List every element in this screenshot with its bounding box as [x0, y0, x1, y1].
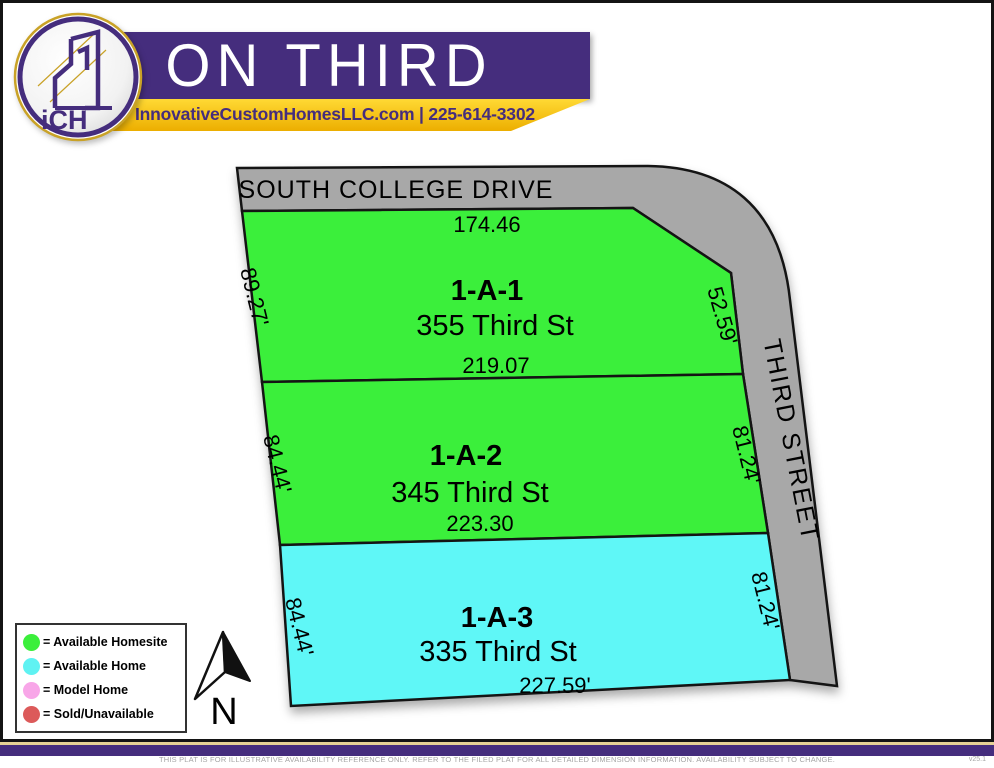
lot2-address: 345 Third St — [391, 477, 548, 509]
north-arrow-icon — [195, 632, 250, 699]
legend-item-sold: = Sold/Unavailable — [23, 702, 185, 726]
lot1-dim-bottom: 219.07 — [462, 353, 529, 378]
model-home-dot — [23, 682, 40, 699]
available-homesite-dot — [23, 634, 40, 651]
legend-label: = Available Home — [43, 659, 146, 673]
lot3-id: 1-A-3 — [461, 602, 534, 634]
lot-1-A-2 — [262, 374, 768, 545]
lot3-address: 335 Third St — [419, 636, 576, 668]
lot3-dim-bottom: 227.59' — [519, 673, 591, 698]
legend-box: = Available Homesite = Available Home = … — [15, 623, 187, 733]
legend-label: = Model Home — [43, 683, 128, 697]
lot1-dim-top: 174.46 — [453, 212, 520, 237]
legend-item-model-home: = Model Home — [23, 678, 185, 702]
north-label: N — [210, 691, 237, 733]
legend-item-available-homesite: = Available Homesite — [23, 630, 185, 654]
road-label-south-college-drive: SOUTH COLLEGE DRIVE — [239, 176, 554, 204]
footer-disclaimer: THIS PLAT IS FOR ILLUSTRATIVE AVAILABILI… — [0, 755, 994, 764]
legend-label: = Available Homesite — [43, 635, 167, 649]
footer-version: v25.1 — [969, 756, 986, 763]
legend-item-available-home: = Available Home — [23, 654, 185, 678]
lot2-dim-bottom: 223.30 — [446, 511, 513, 536]
lot1-address: 355 Third St — [416, 310, 573, 342]
legend-label: = Sold/Unavailable — [43, 707, 154, 721]
sold-unavailable-dot — [23, 706, 40, 723]
lot1-id: 1-A-1 — [451, 275, 524, 307]
available-home-dot — [23, 658, 40, 675]
plat-flyer: ON THIRD InnovativeCustomHomesLLC.com | … — [0, 0, 994, 768]
lot2-id: 1-A-2 — [430, 440, 503, 472]
